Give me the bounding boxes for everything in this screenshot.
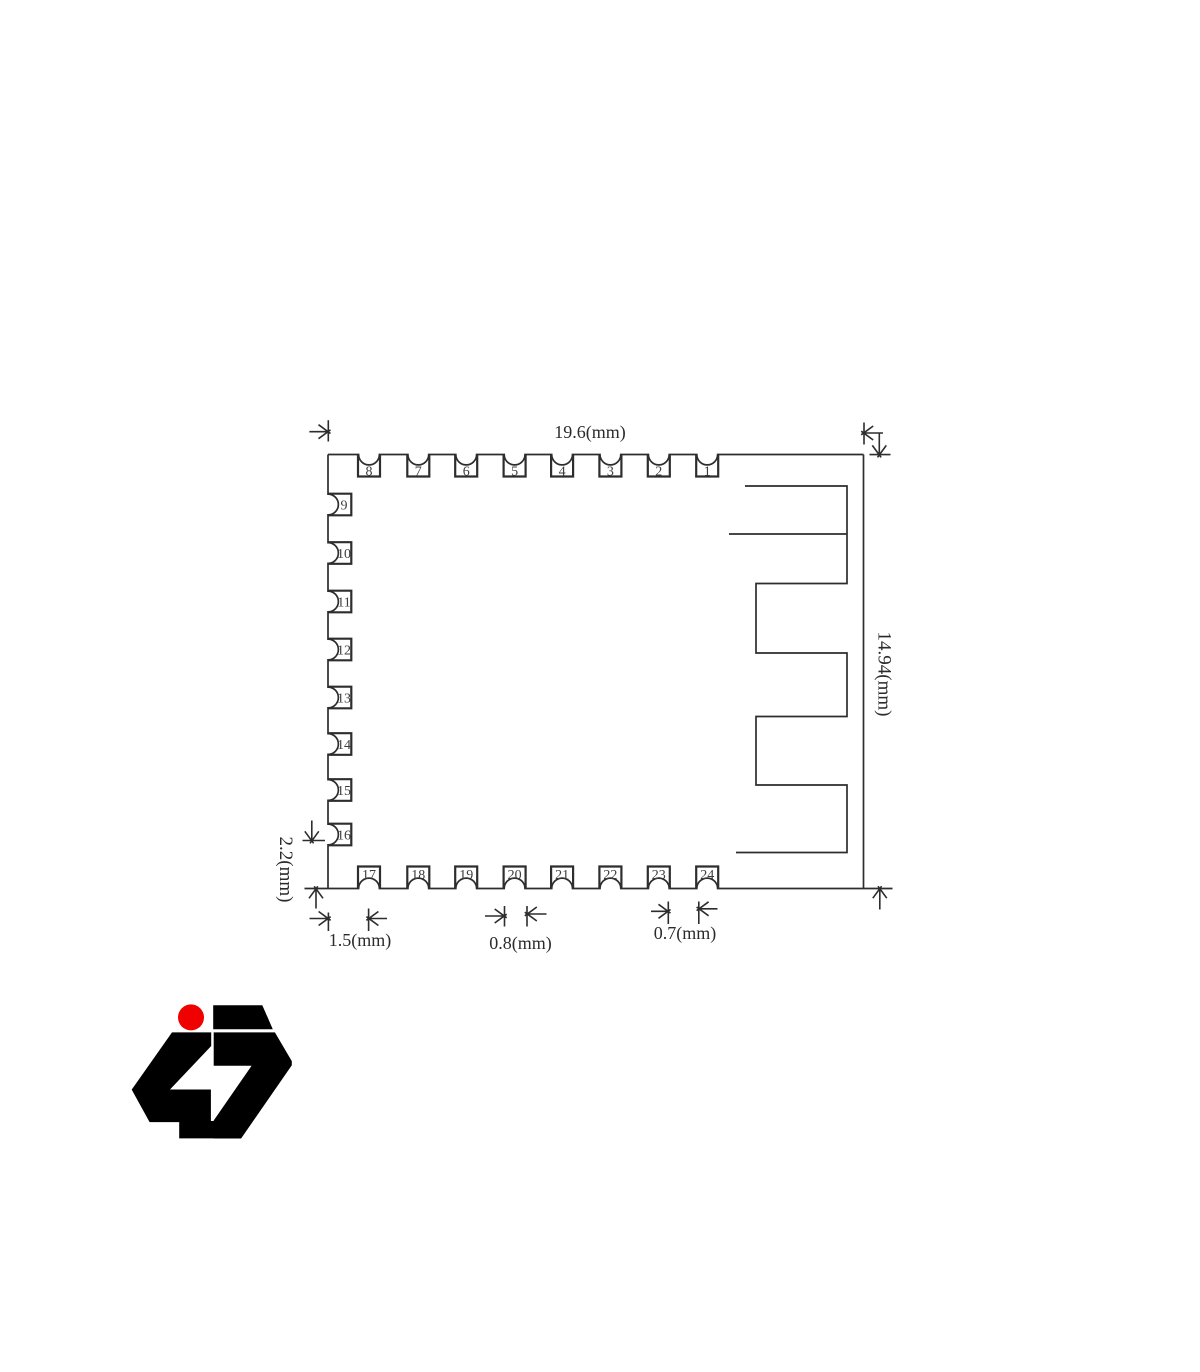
svg-text:7: 7 xyxy=(415,464,422,479)
svg-text:15: 15 xyxy=(337,784,351,799)
svg-text:14.94(mm): 14.94(mm) xyxy=(874,632,895,717)
svg-text:1: 1 xyxy=(704,464,711,479)
svg-text:6: 6 xyxy=(463,464,470,479)
svg-text:9: 9 xyxy=(341,498,348,513)
svg-text:4: 4 xyxy=(559,464,566,479)
svg-text:2.2(mm): 2.2(mm) xyxy=(275,837,296,903)
svg-text:20: 20 xyxy=(508,868,522,883)
svg-text:22: 22 xyxy=(603,868,617,883)
svg-text:10: 10 xyxy=(337,547,351,562)
svg-text:11: 11 xyxy=(337,595,350,610)
svg-text:14: 14 xyxy=(337,738,351,753)
svg-text:16: 16 xyxy=(337,828,351,843)
svg-text:13: 13 xyxy=(337,691,351,706)
svg-text:12: 12 xyxy=(337,643,351,658)
svg-text:18: 18 xyxy=(411,868,425,883)
svg-text:19: 19 xyxy=(459,868,473,883)
svg-text:5: 5 xyxy=(511,464,518,479)
svg-text:24: 24 xyxy=(700,868,714,883)
svg-text:3: 3 xyxy=(607,464,614,479)
svg-text:0.7(mm): 0.7(mm) xyxy=(654,923,717,944)
svg-text:1.5(mm): 1.5(mm) xyxy=(329,930,392,951)
svg-text:23: 23 xyxy=(652,868,666,883)
svg-text:19.6(mm): 19.6(mm) xyxy=(554,422,626,443)
svg-text:8: 8 xyxy=(366,464,373,479)
svg-text:17: 17 xyxy=(362,868,376,883)
svg-text:21: 21 xyxy=(555,868,569,883)
svg-text:2: 2 xyxy=(655,464,662,479)
svg-text:0.8(mm): 0.8(mm) xyxy=(489,933,552,954)
